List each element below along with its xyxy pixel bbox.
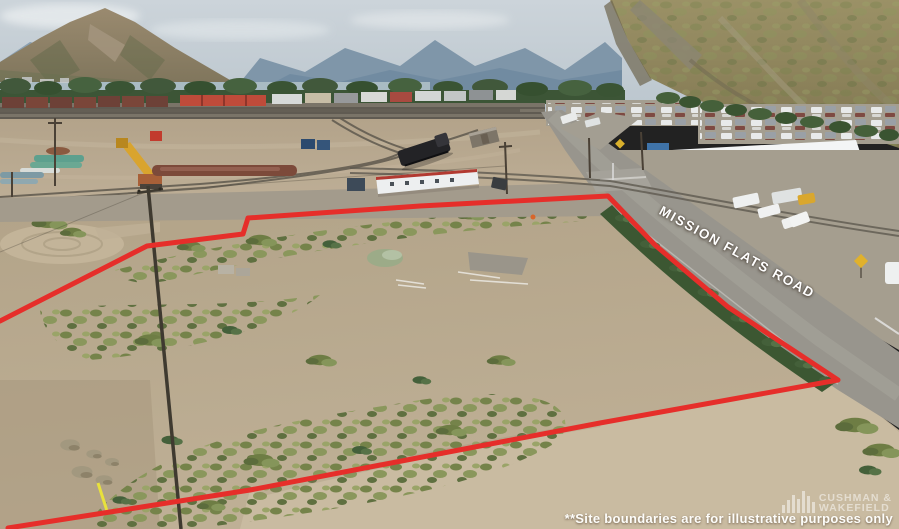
- disclaimer-text: **Site boundaries are for illustrative p…: [565, 511, 893, 526]
- aerial-photo: MISSION FLATS ROAD CUSHMAN & WAKEFIELD *…: [0, 0, 899, 529]
- brokerage-logo: CUSHMAN & WAKEFIELD: [782, 491, 892, 513]
- rusty-pipes: [152, 165, 297, 176]
- building-bars-icon: [782, 491, 815, 513]
- brokerage-logo-text: CUSHMAN & WAKEFIELD: [819, 493, 892, 513]
